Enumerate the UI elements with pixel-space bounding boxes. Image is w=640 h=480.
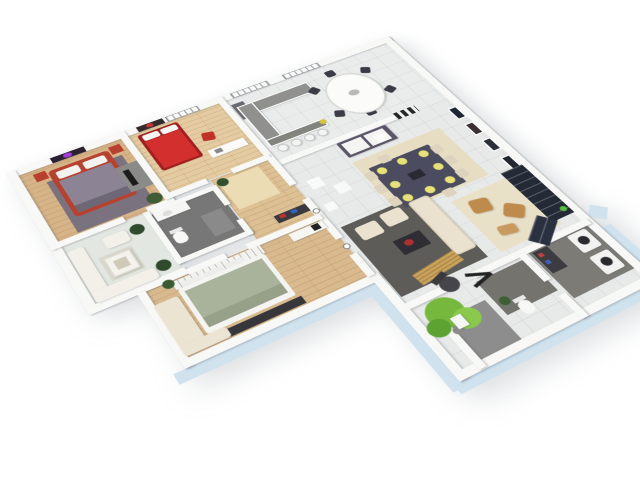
render-viewport [0,0,640,480]
floorplan [6,30,640,480]
slab-rim-corner-notch [588,204,607,219]
reading-armchair-2 [503,203,525,219]
breakfast-chair-ne [360,67,370,73]
breakfast-chair-sw [334,110,346,117]
